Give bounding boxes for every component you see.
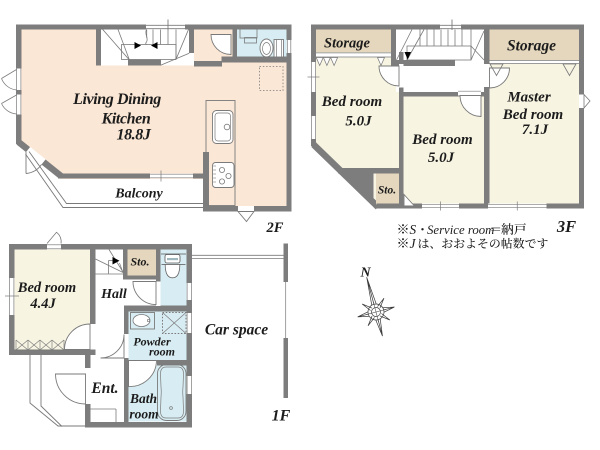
svg-text:5.0J: 5.0J [345, 114, 372, 130]
svg-text:Service room: Service room [427, 223, 494, 237]
svg-text:N: N [359, 266, 371, 281]
svg-text:Kitchen: Kitchen [101, 111, 151, 128]
svg-text:Living Dining: Living Dining [72, 91, 161, 108]
svg-text:3F: 3F [556, 217, 576, 236]
svg-text:Hall: Hall [100, 287, 127, 302]
svg-text:7.1J: 7.1J [522, 122, 549, 138]
svg-text:Car space: Car space [205, 322, 268, 339]
svg-text:Bed room: Bed room [502, 107, 563, 123]
svg-text:18.8J: 18.8J [116, 127, 151, 144]
svg-text:J: J [410, 236, 417, 251]
svg-text:2F: 2F [266, 220, 284, 236]
svg-text:room: room [129, 407, 158, 422]
svg-text:Balcony: Balcony [114, 187, 163, 202]
svg-text:Bed room: Bed room [321, 94, 382, 110]
svg-text:room: room [149, 345, 175, 359]
svg-text:Bed room: Bed room [411, 132, 472, 148]
svg-text:Bath: Bath [129, 391, 157, 406]
svg-text:1F: 1F [272, 408, 291, 425]
svg-text:Master: Master [506, 90, 551, 106]
svg-text:Sto.: Sto. [130, 255, 149, 269]
svg-text:4.4J: 4.4J [29, 296, 56, 312]
svg-text:5.0J: 5.0J [428, 150, 455, 166]
svg-text:Bed room: Bed room [17, 280, 76, 296]
svg-text:Storage: Storage [324, 36, 370, 52]
svg-text:Ent.: Ent. [90, 380, 118, 397]
svg-text:Sto.: Sto. [378, 185, 396, 197]
svg-text:Storage: Storage [507, 38, 556, 55]
svg-text:S: S [410, 222, 417, 237]
